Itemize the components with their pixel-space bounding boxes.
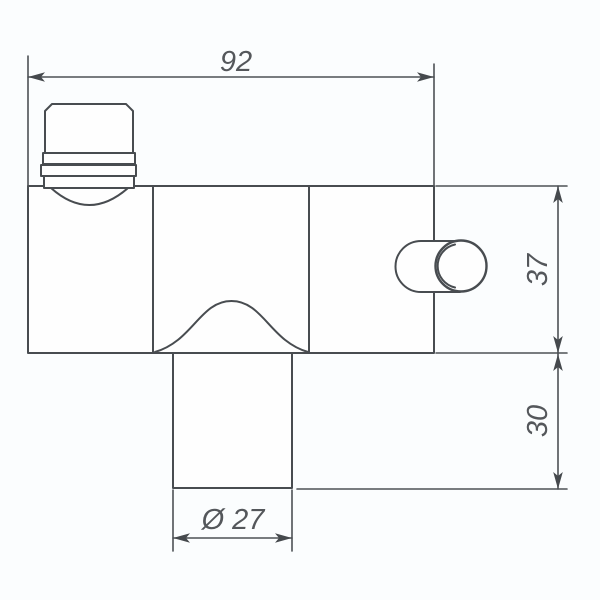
knob-upper-band xyxy=(43,153,135,164)
knob-middle-band xyxy=(41,165,136,176)
inlet-pipe-outline xyxy=(173,353,292,488)
knob-cap xyxy=(45,104,133,153)
technical-drawing-page: 92 37 30 Ø 27 xyxy=(0,0,600,600)
knob-base-band xyxy=(44,176,134,188)
outlet-height-dimension-label: 30 xyxy=(522,405,554,437)
dimension-diameter: Ø 27 xyxy=(173,490,292,551)
spout-end-circle xyxy=(436,241,487,292)
body-height-dimension-label: 37 xyxy=(522,252,554,286)
valve-body xyxy=(28,186,434,353)
dimension-outlet-height: 30 xyxy=(297,353,567,489)
width-dimension-label: 92 xyxy=(220,46,252,78)
valve-technical-drawing: 92 37 30 Ø 27 xyxy=(0,0,600,600)
inlet-pipe xyxy=(173,353,292,488)
outlet-spout xyxy=(396,241,487,293)
valve-body-outline xyxy=(28,186,434,353)
diameter-dimension-label: Ø 27 xyxy=(201,504,267,536)
